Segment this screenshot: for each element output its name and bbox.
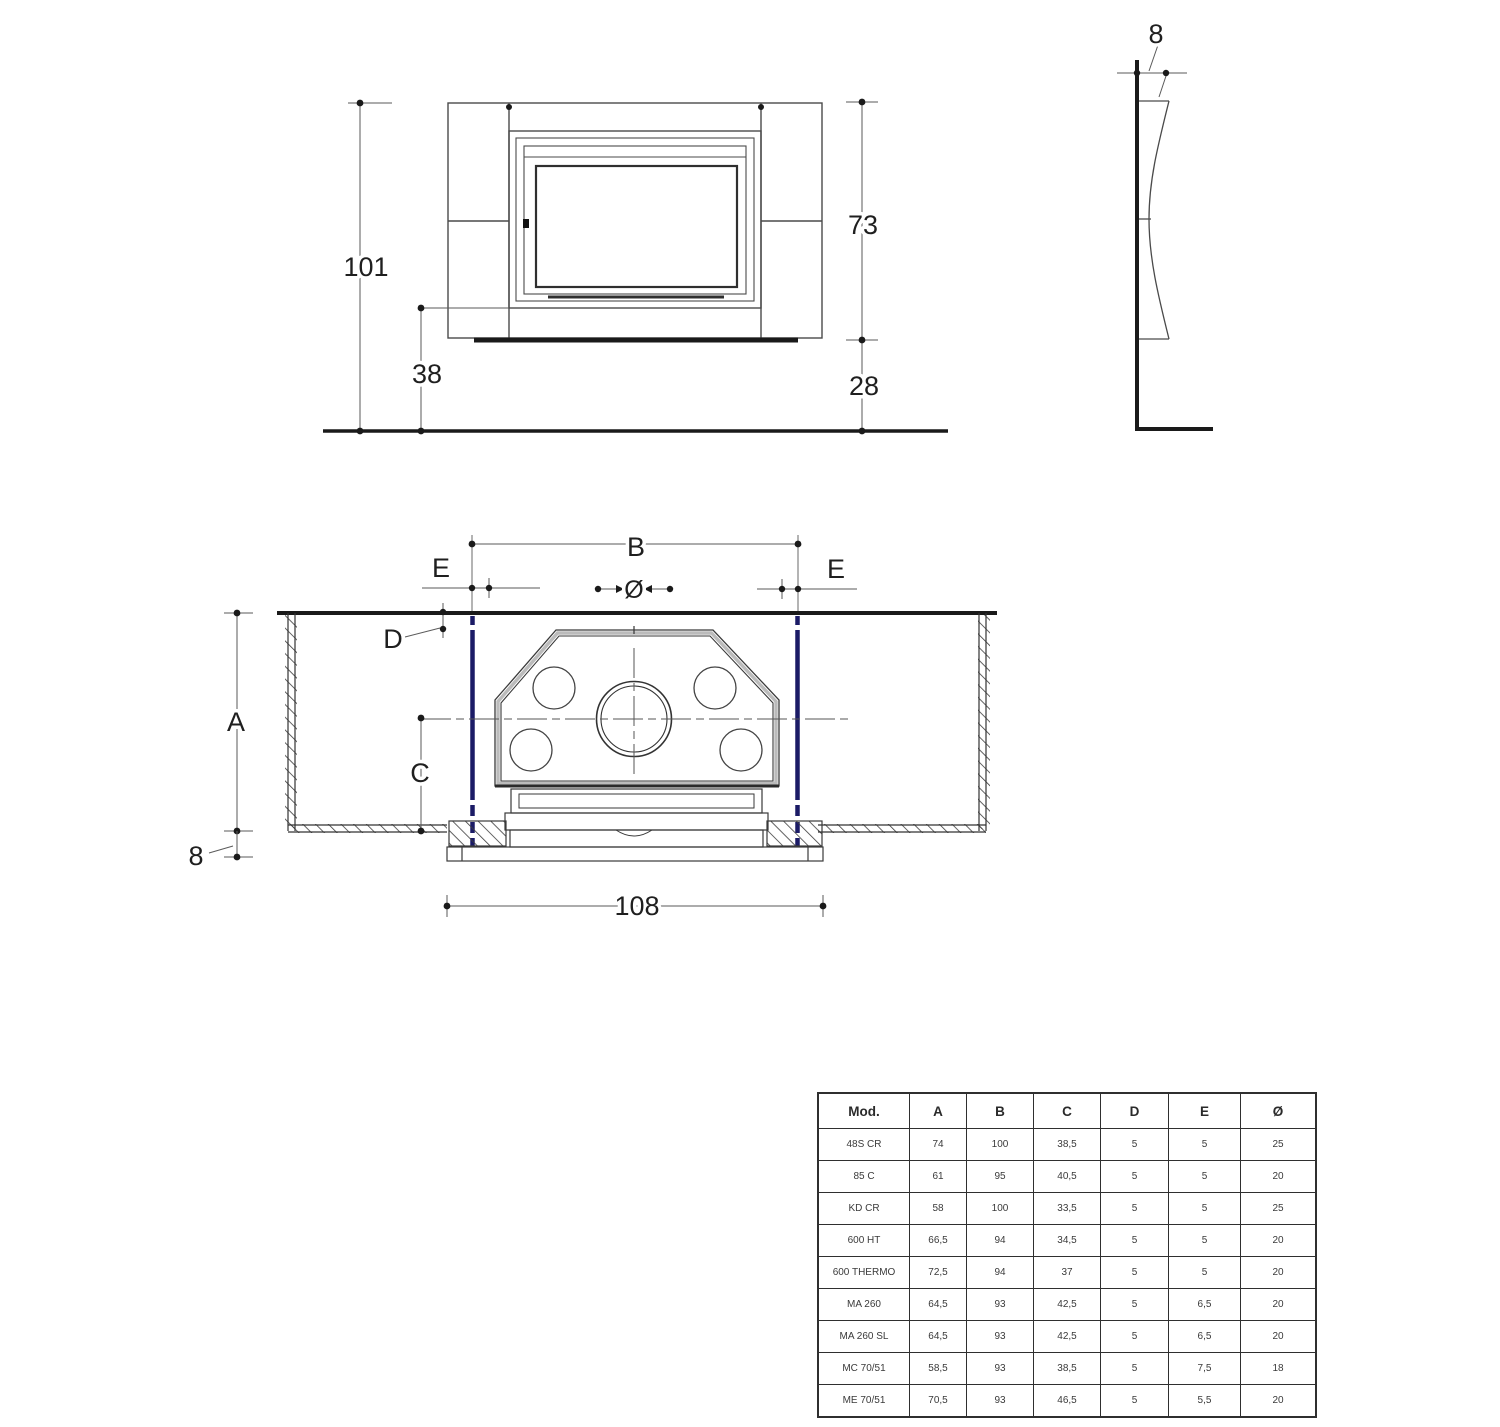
spec-value-cell: 5 [1101,1321,1169,1353]
spec-value-cell: 5 [1101,1289,1169,1321]
side-panel-depth-label: 8 [1148,19,1163,49]
plan-slab-thickness-label: 8 [188,841,203,871]
spec-value-cell: 20 [1241,1321,1317,1353]
spec-value-cell: 42,5 [1034,1289,1101,1321]
spec-value-cell: 6,5 [1169,1289,1241,1321]
spec-value-cell: 5 [1101,1193,1169,1225]
spec-table-header-cell: B [967,1093,1034,1129]
spec-value-cell: 61 [910,1161,967,1193]
spec-value-cell: 18 [1241,1353,1317,1385]
spec-value-cell: 5 [1101,1129,1169,1161]
spec-value-cell: 72,5 [910,1257,967,1289]
spec-value-cell: 5 [1101,1257,1169,1289]
spec-value-cell: 5 [1101,1225,1169,1257]
insert-base-plan [447,789,823,861]
vent-hole-bottom-left [510,729,552,771]
spec-table: Mod.ABCDEØ 48S CR7410038,5552585 C619540… [817,1092,1317,1418]
vent-hole-top-right [694,667,736,709]
spec-value-cell: 6,5 [1169,1321,1241,1353]
spec-model-cell: ME 70/51 [818,1385,910,1418]
vent-hole-top-left [533,667,575,709]
spec-value-cell: 70,5 [910,1385,967,1418]
plan-wall-thickness-label: D [383,624,403,654]
spec-model-cell: MA 260 SL [818,1321,910,1353]
spec-model-cell: 600 HT [818,1225,910,1257]
spec-value-cell: 20 [1241,1289,1317,1321]
spec-value-cell: 38,5 [1034,1353,1101,1385]
spec-value-cell: 5,5 [1169,1385,1241,1418]
spec-table-header-row: Mod.ABCDEØ [818,1093,1316,1129]
spec-value-cell: 58,5 [910,1353,967,1385]
spec-model-cell: MC 70/51 [818,1353,910,1385]
spec-table-row: MA 26064,59342,556,520 [818,1289,1316,1321]
spec-value-cell: 7,5 [1169,1353,1241,1385]
spec-value-cell: 74 [910,1129,967,1161]
anchor-bracket-right [767,821,822,846]
spec-model-cell: 48S CR [818,1129,910,1161]
spec-value-cell: 25 [1241,1129,1317,1161]
spec-value-cell: 5 [1169,1161,1241,1193]
spec-table-header-cell: Ø [1241,1093,1317,1129]
spec-model-cell: MA 260 [818,1289,910,1321]
front-plinth-height-label: 28 [849,371,879,401]
spec-table-row: 600 THERMO72,594375520 [818,1257,1316,1289]
spec-value-cell: 20 [1241,1257,1317,1289]
spec-value-cell: 40,5 [1034,1161,1101,1193]
spec-value-cell: 25 [1241,1193,1317,1225]
spec-value-cell: 58 [910,1193,967,1225]
spec-value-cell: 20 [1241,1385,1317,1418]
spec-value-cell: 5 [1101,1161,1169,1193]
technical-drawing-sheet: 101 73 28 38 8 [0,0,1500,1427]
spec-table-header-cell: C [1034,1093,1101,1129]
spec-value-cell: 93 [967,1289,1034,1321]
spec-table-row: ME 70/5170,59346,555,520 [818,1385,1316,1418]
right-wall-section [818,613,990,833]
front-total-height-label: 101 [343,252,388,282]
spec-value-cell: 33,5 [1034,1193,1101,1225]
spec-table-header-cell: D [1101,1093,1169,1129]
spec-value-cell: 100 [967,1193,1034,1225]
side-panel-profile [1139,101,1169,339]
spec-model-cell: KD CR [818,1193,910,1225]
plan-view: B E E Ø D A C 8 108 [188,532,997,921]
spec-value-cell: 64,5 [910,1321,967,1353]
spec-value-cell: 20 [1241,1161,1317,1193]
spec-table-row: KD CR5810033,55525 [818,1193,1316,1225]
spec-value-cell: 64,5 [910,1289,967,1321]
spec-table-header-cell: E [1169,1093,1241,1129]
dim-panel-depth [1117,45,1187,97]
spec-value-cell: 5 [1169,1257,1241,1289]
spec-value-cell: 66,5 [910,1225,967,1257]
spec-value-cell: 95 [967,1161,1034,1193]
spec-value-cell: 46,5 [1034,1385,1101,1418]
plan-overall-width-label: 108 [614,891,659,921]
plan-clearance-left-label: E [432,553,450,583]
plan-recess-depth-label: A [227,707,245,737]
plan-flue-diameter-label: Ø [624,576,643,604]
side-view: 8 [1117,19,1213,429]
spec-table-row: 48S CR7410038,55525 [818,1129,1316,1161]
spec-value-cell: 94 [967,1225,1034,1257]
left-wall-section [285,613,447,833]
spec-table-header-cell: Mod. [818,1093,910,1129]
spec-value-cell: 94 [967,1257,1034,1289]
spec-table-row: MA 260 SL64,59342,556,520 [818,1321,1316,1353]
dim-slab-thickness [209,831,253,860]
spec-value-cell: 93 [967,1353,1034,1385]
spec-value-cell: 42,5 [1034,1321,1101,1353]
spec-value-cell: 38,5 [1034,1129,1101,1161]
spec-table-row: 600 HT66,59434,55520 [818,1225,1316,1257]
insert-door [509,131,761,308]
spec-model-cell: 600 THERMO [818,1257,910,1289]
spec-value-cell: 100 [967,1129,1034,1161]
spec-value-cell: 5 [1169,1129,1241,1161]
anchor-bracket-left [449,821,506,846]
spec-value-cell: 5 [1169,1225,1241,1257]
door-glass [536,166,737,287]
door-handle [523,219,529,228]
spec-value-cell: 20 [1241,1225,1317,1257]
spec-value-cell: 5 [1101,1385,1169,1418]
spec-value-cell: 5 [1169,1193,1241,1225]
spec-table-body: 48S CR7410038,5552585 C619540,55520KD CR… [818,1129,1316,1418]
spec-table-header-cell: A [910,1093,967,1129]
spec-value-cell: 5 [1101,1353,1169,1385]
front-view: 101 73 28 38 [323,99,948,435]
spec-model-cell: 85 C [818,1161,910,1193]
plan-flue-center-depth-label: C [410,758,430,788]
plan-recess-width-label: B [627,532,645,562]
plan-clearance-right-label: E [827,554,845,584]
spec-value-cell: 34,5 [1034,1225,1101,1257]
dim-wall-thickness [405,603,446,638]
spec-value-cell: 37 [1034,1257,1101,1289]
vent-hole-bottom-right [720,729,762,771]
insert-body-plan [421,626,848,786]
front-firebox-height-label: 73 [848,210,878,240]
spec-value-cell: 93 [967,1385,1034,1418]
front-hearth-height-label: 38 [412,359,442,389]
spec-table-row: MC 70/5158,59338,557,518 [818,1353,1316,1385]
spec-value-cell: 93 [967,1321,1034,1353]
spec-table-row: 85 C619540,55520 [818,1161,1316,1193]
